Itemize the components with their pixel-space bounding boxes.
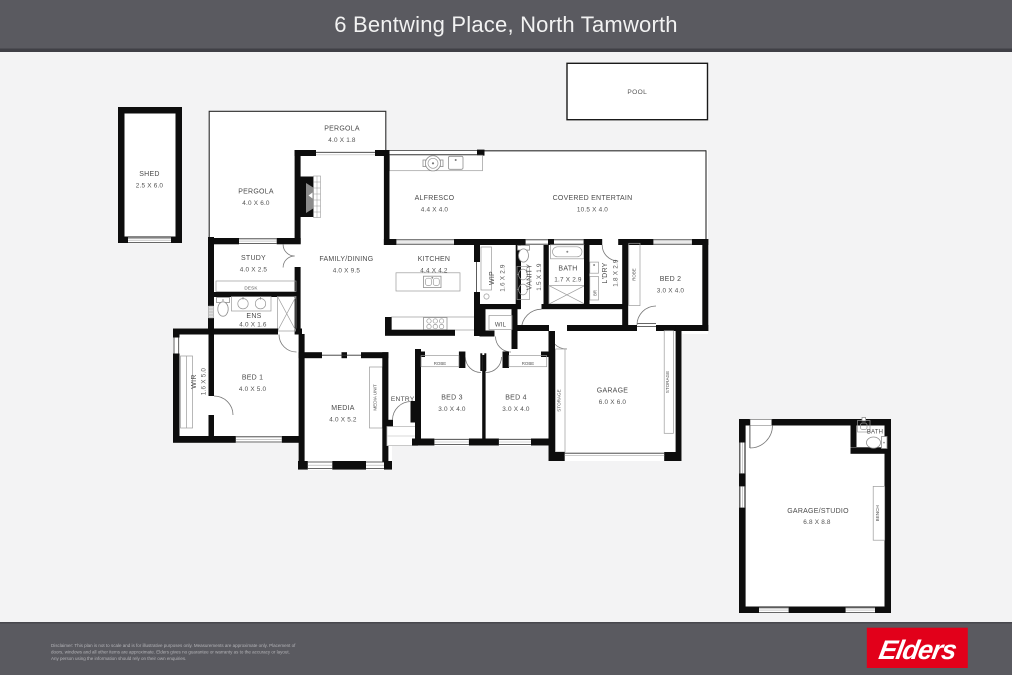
- svg-text:BR: BR: [593, 290, 598, 296]
- svg-text:VANITY: VANITY: [527, 264, 534, 290]
- svg-text:STUDY: STUDY: [241, 255, 266, 262]
- svg-text:STORAGE: STORAGE: [557, 389, 562, 411]
- svg-text:1.5 X 1.9: 1.5 X 1.9: [536, 263, 543, 291]
- svg-text:STORAGE: STORAGE: [665, 371, 670, 393]
- svg-text:1.6 X 5.0: 1.6 X 5.0: [201, 368, 208, 396]
- svg-text:WIP: WIP: [489, 271, 496, 285]
- svg-text:PERGOLA: PERGOLA: [324, 126, 360, 133]
- svg-text:MEDIA: MEDIA: [331, 405, 355, 412]
- svg-text:FAMILY/DINING: FAMILY/DINING: [319, 256, 373, 263]
- svg-text:BATH: BATH: [867, 430, 883, 436]
- svg-text:BATH: BATH: [558, 266, 577, 273]
- svg-text:ROBE: ROBE: [522, 361, 535, 366]
- svg-text:doors, windows and all other i: doors, windows and all other items are a…: [51, 650, 290, 655]
- svg-text:Elders: Elders: [877, 634, 960, 665]
- svg-text:4.4 X 4.0: 4.4 X 4.0: [421, 207, 449, 214]
- svg-text:6.0 X 6.0: 6.0 X 6.0: [599, 399, 627, 406]
- svg-text:COVERED ENTERTAIN: COVERED ENTERTAIN: [553, 195, 633, 202]
- svg-text:PERGOLA: PERGOLA: [238, 189, 274, 196]
- svg-text:DESK: DESK: [244, 285, 258, 290]
- svg-text:ENS: ENS: [246, 313, 261, 320]
- svg-text:Any person using the informati: Any person using the information should …: [51, 656, 186, 661]
- svg-text:4.0 X 6.0: 4.0 X 6.0: [242, 200, 270, 207]
- svg-text:KITCHEN: KITCHEN: [418, 256, 450, 263]
- svg-text:4.0 X 2.5: 4.0 X 2.5: [240, 267, 268, 274]
- svg-text:L'DRY: L'DRY: [602, 262, 609, 283]
- svg-text:ROBE: ROBE: [632, 268, 637, 281]
- svg-text:3.0 X 4.0: 3.0 X 4.0: [438, 406, 466, 413]
- svg-text:4.0 X 1.8: 4.0 X 1.8: [328, 137, 356, 144]
- svg-text:BED 4: BED 4: [505, 395, 526, 402]
- svg-text:WIL: WIL: [495, 323, 507, 329]
- svg-text:BENCH: BENCH: [875, 505, 880, 521]
- svg-text:10.5 X 4.0: 10.5 X 4.0: [577, 207, 608, 214]
- svg-text:MEDIA UNIT: MEDIA UNIT: [373, 384, 378, 410]
- svg-text:6.8 X 8.8: 6.8 X 8.8: [803, 519, 831, 526]
- svg-text:4.0 X 9.5: 4.0 X 9.5: [333, 268, 361, 275]
- svg-text:4.0 X 5.2: 4.0 X 5.2: [329, 417, 357, 424]
- svg-text:4.0 X 1.6: 4.0 X 1.6: [239, 322, 267, 329]
- svg-text:BED 2: BED 2: [660, 276, 681, 283]
- svg-text:1.6 X 2.9: 1.6 X 2.9: [500, 264, 507, 292]
- svg-text:GARAGE: GARAGE: [597, 388, 629, 395]
- svg-text:SHED: SHED: [139, 171, 159, 178]
- svg-text:ALFRESCO: ALFRESCO: [415, 195, 455, 202]
- svg-text:4.4 X 4.2: 4.4 X 4.2: [420, 268, 448, 275]
- svg-text:3.0 X 4.0: 3.0 X 4.0: [657, 288, 685, 295]
- svg-text:6 Bentwing Place, North Tamwor: 6 Bentwing Place, North Tamworth: [334, 12, 678, 37]
- svg-text:GARAGE/STUDIO: GARAGE/STUDIO: [787, 508, 849, 515]
- svg-text:4.0 X 5.0: 4.0 X 5.0: [239, 386, 267, 393]
- svg-text:POOL: POOL: [627, 89, 647, 96]
- svg-text:BED 1: BED 1: [242, 375, 263, 382]
- svg-text:1.8 X 2.9: 1.8 X 2.9: [613, 259, 620, 287]
- svg-text:BED 3: BED 3: [441, 395, 462, 402]
- svg-text:WIR: WIR: [191, 374, 198, 388]
- svg-text:3.0 X 4.0: 3.0 X 4.0: [502, 406, 530, 413]
- svg-text:Disclaimer: This plan is not t: Disclaimer: This plan is not to scale an…: [51, 643, 296, 648]
- svg-text:2.5 X 6.0: 2.5 X 6.0: [136, 183, 164, 190]
- svg-text:1.7 X 2.9: 1.7 X 2.9: [554, 277, 582, 284]
- svg-text:ROBE: ROBE: [434, 361, 447, 366]
